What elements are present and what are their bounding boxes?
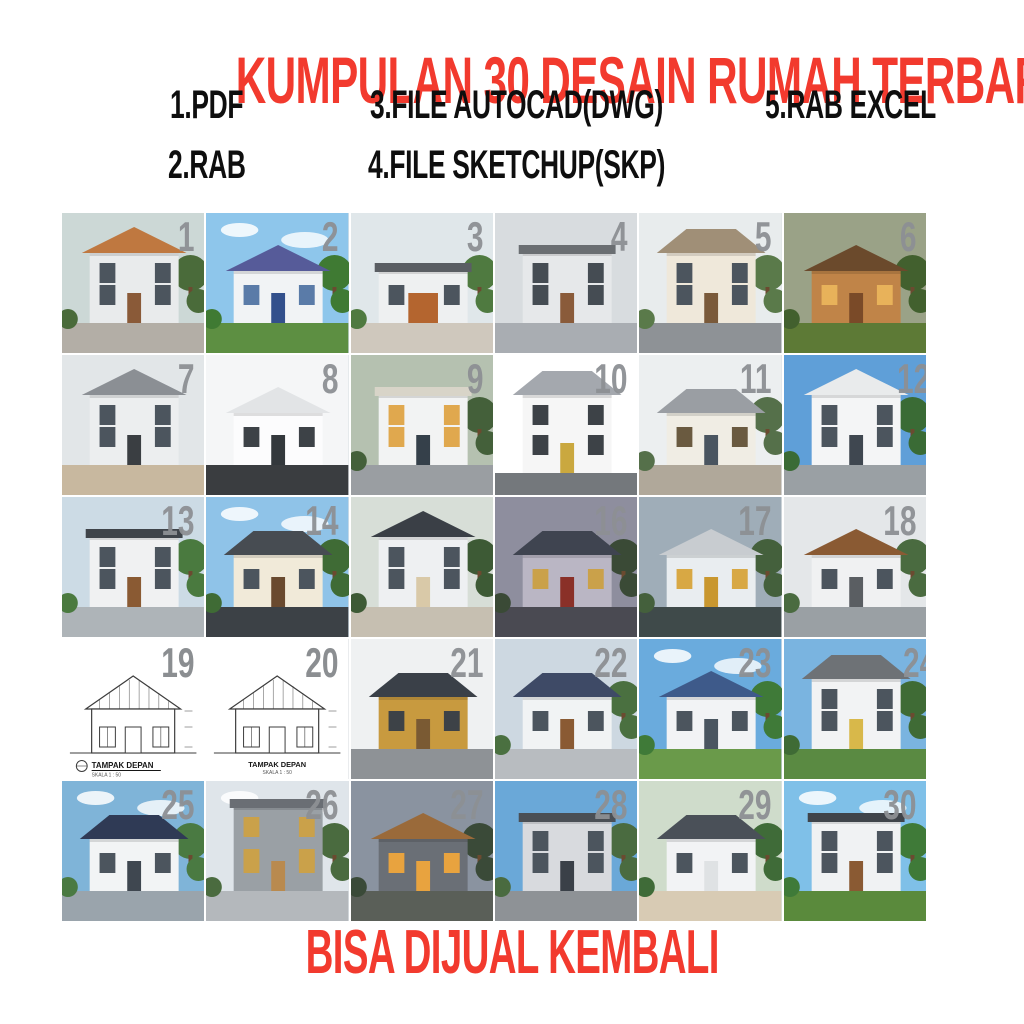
tile-number: 30	[883, 781, 916, 828]
tile-number: 22	[594, 639, 627, 686]
design-tile-20: TAMPAK DEPANSKALA 1 : 5020	[206, 639, 348, 779]
cad-drawing-label: TAMPAK DEPAN	[92, 761, 154, 770]
house-render: 11	[639, 355, 781, 495]
house-render: 21	[351, 639, 493, 779]
tile-number: 26	[306, 781, 339, 828]
tile-number: 24	[903, 639, 926, 686]
tile-number: 4	[611, 213, 628, 260]
design-tile-16: 16	[495, 497, 637, 637]
house-render: 4	[495, 213, 637, 353]
design-tile-22: 22	[495, 639, 637, 779]
house-render: 24	[784, 639, 926, 779]
design-tile-4: 4	[495, 213, 637, 353]
design-grid: 1234567891011121314161718TAMPAK DEPANSKA…	[62, 213, 926, 921]
design-tile-15	[351, 497, 493, 637]
tile-number: 18	[883, 497, 916, 544]
feature-item-pdf: 1.PDF	[170, 85, 281, 125]
house-render: 8	[206, 355, 348, 495]
cad-drawing-scale: SKALA 1 : 50	[263, 770, 293, 776]
tile-number: 1	[178, 213, 195, 260]
promo-footer: BISA DIJUAL KEMBALI	[0, 922, 1024, 984]
house-render: 12	[784, 355, 926, 495]
house-render: 9	[351, 355, 493, 495]
house-render: 2	[206, 213, 348, 353]
design-tile-5: 5	[639, 213, 781, 353]
design-tile-17: 17	[639, 497, 781, 637]
house-render: 6	[784, 213, 926, 353]
design-tile-11: 11	[639, 355, 781, 495]
house-render: 22	[495, 639, 637, 779]
tile-number: 6	[899, 213, 916, 260]
tile-number: 19	[161, 639, 194, 686]
promo-image: KUMPULAN 30 DESAIN RUMAH TERBARU 1.PDF 2…	[0, 0, 1024, 1024]
tile-number: 5	[755, 213, 772, 260]
design-tile-7: 7	[62, 355, 204, 495]
design-tile-28: 28	[495, 781, 637, 921]
design-tile-2: 2	[206, 213, 348, 353]
tile-number: 16	[594, 497, 627, 544]
house-render: 14	[206, 497, 348, 637]
feature-item-autocad: 3.FILE AUTOCAD(DWG)	[370, 85, 814, 125]
cad-drawing-scale: SKALA 1 : 50	[92, 772, 122, 778]
tile-number: 10	[594, 355, 627, 402]
design-tile-19: TAMPAK DEPANSKALA 1 : 5019	[62, 639, 204, 779]
house-render: 28	[495, 781, 637, 921]
tile-number: 13	[161, 497, 194, 544]
house-render: 1	[62, 213, 204, 353]
tile-number: 12	[897, 355, 926, 402]
design-tile-29: 29	[639, 781, 781, 921]
tile-number: 27	[450, 781, 483, 828]
design-tile-21: 21	[351, 639, 493, 779]
house-render	[351, 497, 493, 637]
house-render: 17	[639, 497, 781, 637]
house-render: 18	[784, 497, 926, 637]
design-tile-23: 23	[639, 639, 781, 779]
design-tile-26: 26	[206, 781, 348, 921]
house-render: 10	[495, 355, 637, 495]
tile-number: 3	[466, 213, 483, 260]
feature-item-rab-excel: 5.RAB EXCEL	[765, 85, 1024, 125]
promo-footer-text: BISA DIJUAL KEMBALI	[305, 922, 718, 984]
tile-number: 23	[739, 639, 772, 686]
tile-number: 8	[322, 355, 339, 402]
design-tile-8: 8	[206, 355, 348, 495]
design-tile-13: 13	[62, 497, 204, 637]
design-tile-14: 14	[206, 497, 348, 637]
tile-number: 21	[450, 639, 483, 686]
design-tile-25: 25	[62, 781, 204, 921]
tile-number: 7	[178, 355, 195, 402]
tile-number: 28	[594, 781, 627, 828]
house-render: 16	[495, 497, 637, 637]
feature-item-rab: 2.RAB	[168, 145, 286, 185]
house-render: 30	[784, 781, 926, 921]
house-render: 26	[206, 781, 348, 921]
design-tile-9: 9	[351, 355, 493, 495]
design-tile-12: 12	[784, 355, 926, 495]
design-tile-30: 30	[784, 781, 926, 921]
design-tile-24: 24	[784, 639, 926, 779]
tile-number: 25	[161, 781, 194, 828]
tile-number: 17	[739, 497, 772, 544]
feature-item-sketchup: 4.FILE SKETCHUP(SKP)	[368, 145, 818, 185]
tile-number: 2	[322, 213, 339, 260]
tile-number: 9	[466, 355, 483, 402]
house-render: 27	[351, 781, 493, 921]
house-render: 3	[351, 213, 493, 353]
house-render: 29	[639, 781, 781, 921]
tile-number: 11	[740, 355, 772, 402]
house-render: 23	[639, 639, 781, 779]
design-tile-3: 3	[351, 213, 493, 353]
design-tile-1: 1	[62, 213, 204, 353]
design-tile-10: 10	[495, 355, 637, 495]
house-render: 7	[62, 355, 204, 495]
cad-drawing-label: TAMPAK DEPAN	[249, 760, 307, 769]
tile-number: 14	[306, 497, 340, 544]
design-tile-18: 18	[784, 497, 926, 637]
tile-number: 20	[306, 639, 339, 686]
design-tile-27: 27	[351, 781, 493, 921]
house-render: TAMPAK DEPANSKALA 1 : 5020	[206, 639, 348, 779]
house-render: 5	[639, 213, 781, 353]
house-render: 13	[62, 497, 204, 637]
tile-number: 29	[739, 781, 772, 828]
house-render: TAMPAK DEPANSKALA 1 : 5019	[62, 639, 204, 779]
design-tile-6: 6	[784, 213, 926, 353]
house-render: 25	[62, 781, 204, 921]
